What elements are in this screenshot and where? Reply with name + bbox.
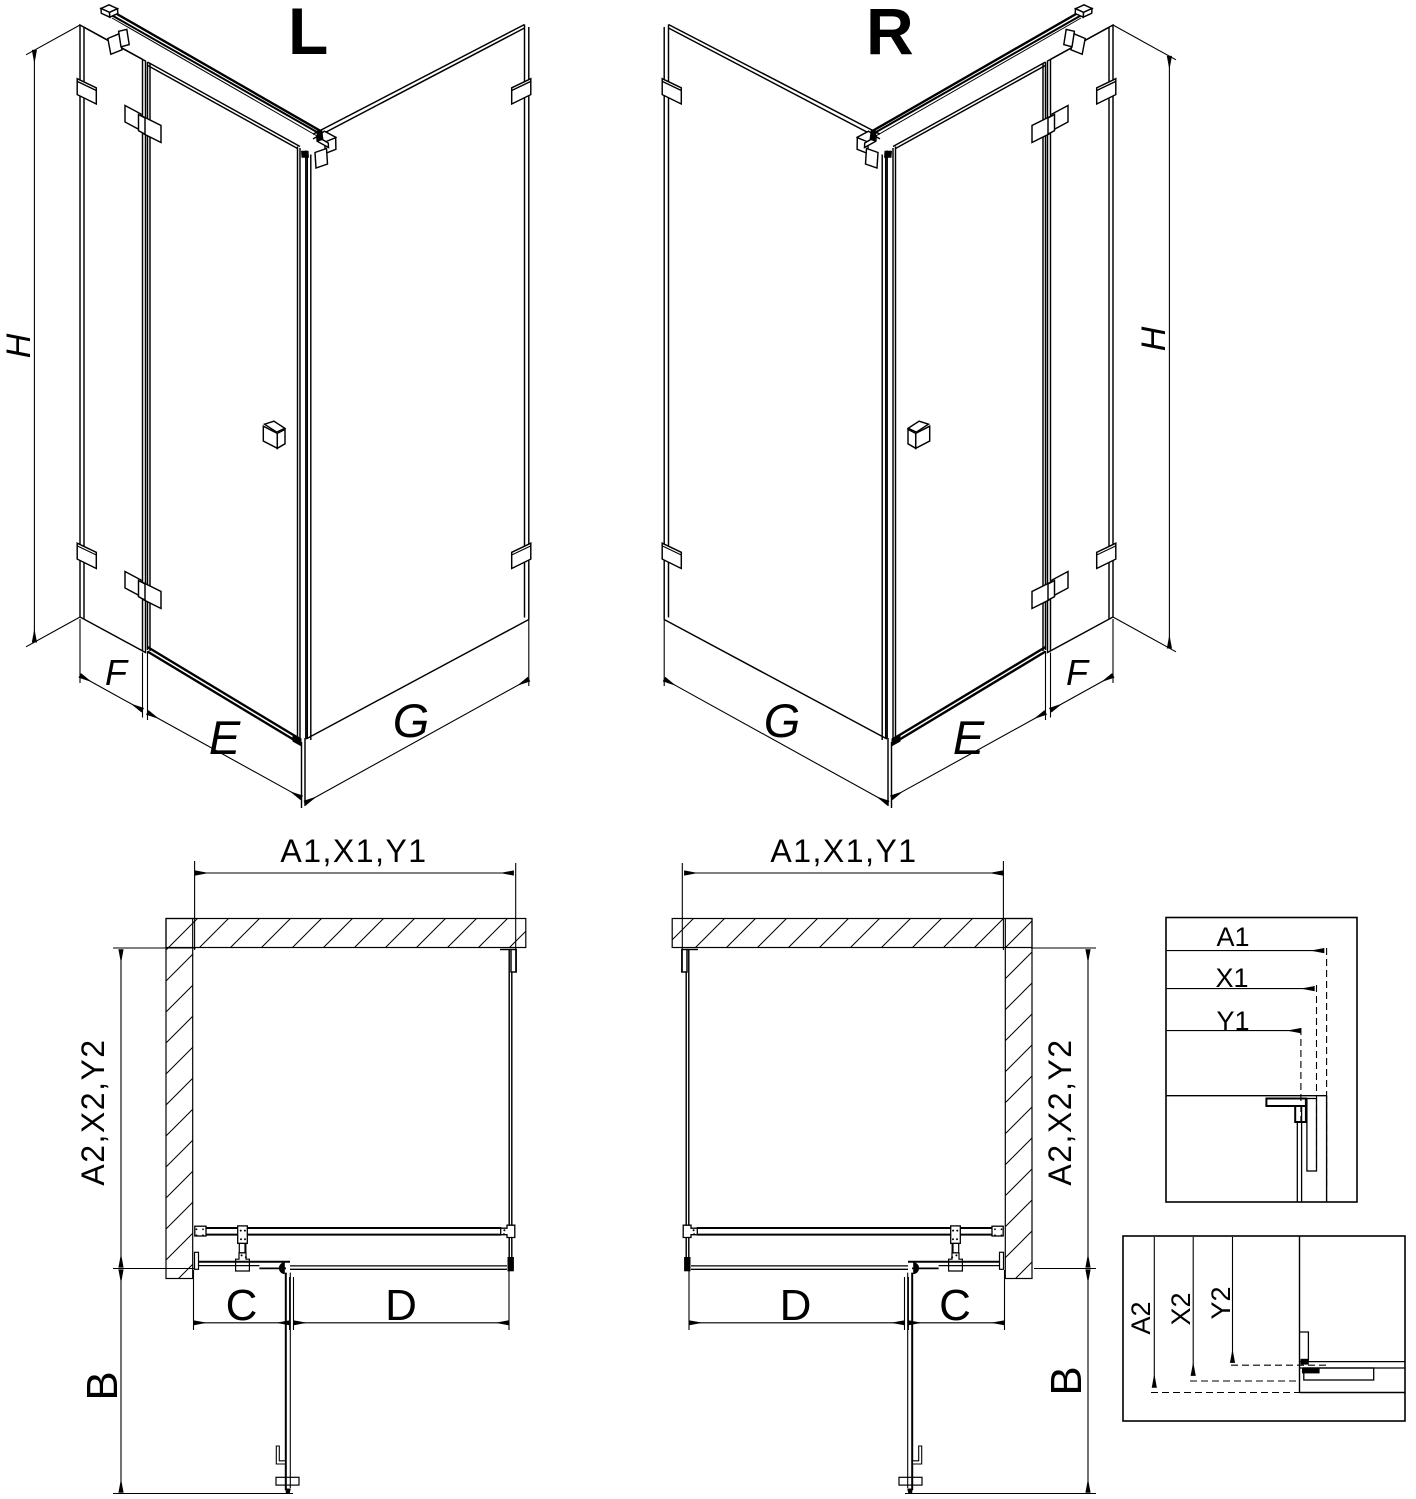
svg-text:Y2: Y2 [1206, 1286, 1236, 1319]
svg-text:D: D [385, 1281, 417, 1330]
svg-text:L: L [288, 0, 328, 68]
svg-text:B: B [1042, 1366, 1091, 1395]
svg-text:A1,X1,Y1: A1,X1,Y1 [770, 833, 917, 869]
svg-text:C: C [226, 1281, 258, 1330]
svg-text:C: C [939, 1281, 971, 1330]
svg-text:Y1: Y1 [1216, 1006, 1249, 1036]
svg-text:G: G [764, 694, 801, 747]
svg-text:X2: X2 [1166, 1292, 1196, 1325]
svg-text:A2: A2 [1126, 1301, 1156, 1334]
svg-text:A1: A1 [1216, 922, 1249, 952]
svg-text:G: G [393, 694, 430, 747]
svg-text:D: D [780, 1281, 812, 1330]
svg-text:H: H [1135, 326, 1173, 351]
svg-text:A2,X2,Y2: A2,X2,Y2 [75, 1038, 111, 1185]
svg-text:R: R [866, 0, 914, 68]
svg-text:B: B [78, 1371, 127, 1400]
svg-text:A1,X1,Y1: A1,X1,Y1 [280, 833, 427, 869]
svg-text:A2,X2,Y2: A2,X2,Y2 [1042, 1038, 1078, 1185]
svg-text:E: E [953, 711, 985, 764]
svg-text:E: E [209, 711, 241, 764]
svg-text:F: F [1066, 652, 1090, 693]
svg-text:F: F [105, 652, 129, 693]
svg-text:H: H [0, 333, 38, 358]
